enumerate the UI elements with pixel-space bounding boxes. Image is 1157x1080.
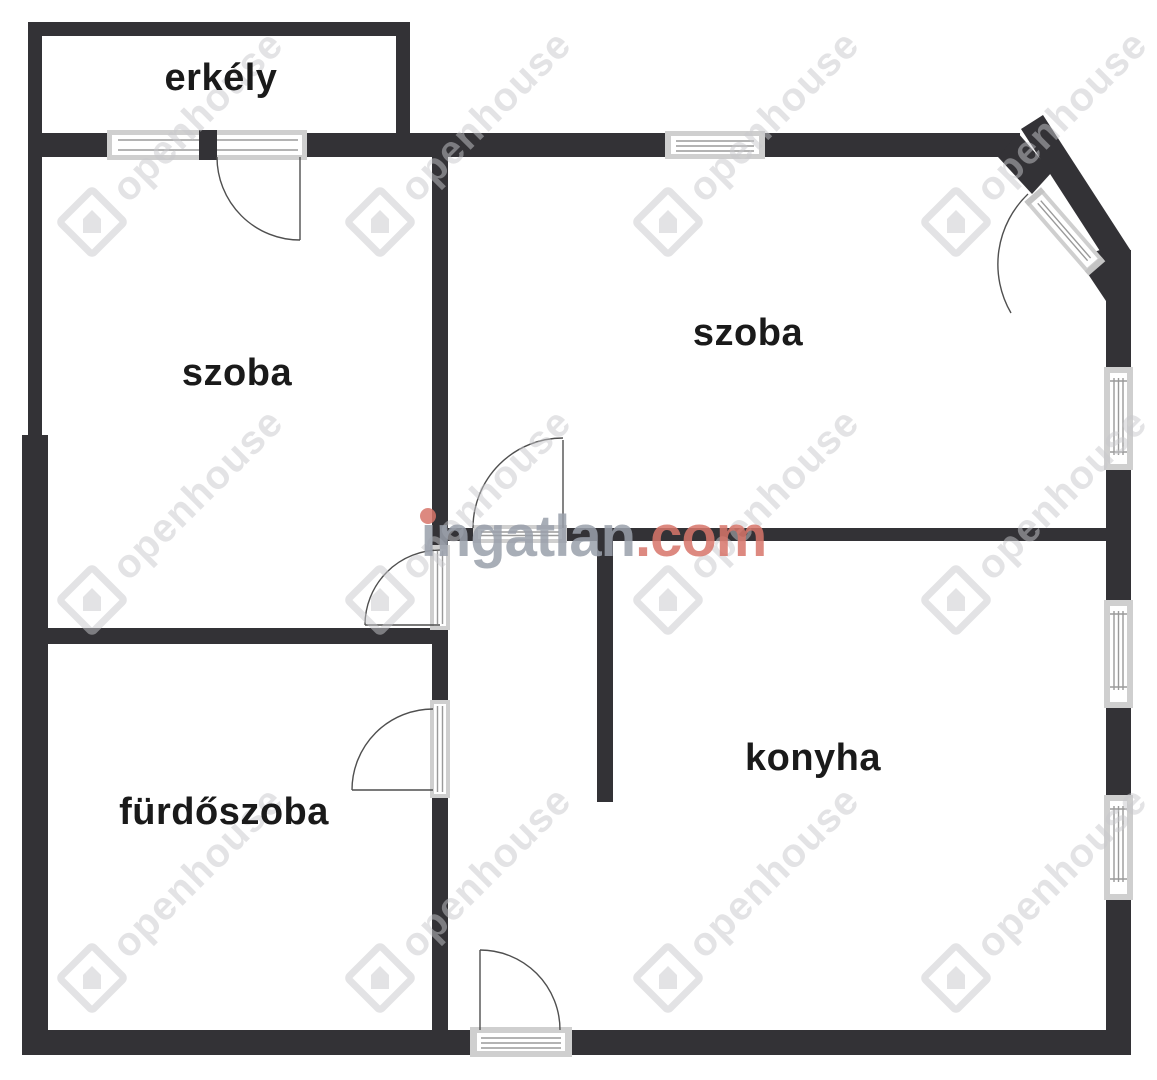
wall (572, 1030, 1131, 1055)
room-label-szoba-left: szoba (182, 352, 293, 394)
brand-i-dot (420, 508, 436, 524)
window (1104, 600, 1133, 708)
door-frame (430, 700, 450, 798)
wall (432, 157, 448, 545)
wall (396, 22, 410, 135)
room-label-szoba-right: szoba (693, 312, 804, 354)
room-label-konyha: konyha (745, 737, 881, 779)
wall (1106, 250, 1131, 367)
wall (765, 133, 1020, 157)
room-label-furdoszoba: fürdőszoba (119, 791, 329, 833)
wall (432, 630, 448, 700)
room-label-erkely: erkély (165, 57, 278, 99)
wall (22, 1030, 470, 1055)
door-frame (470, 1027, 572, 1057)
floor-plan-svg: openhouse (0, 0, 1157, 1080)
wall (28, 22, 42, 135)
brand-watermark-name: ingatlan (421, 504, 635, 569)
wall (1106, 470, 1131, 600)
wall (22, 435, 48, 1055)
wall (597, 540, 613, 802)
wall (28, 133, 42, 440)
brand-watermark-tld: .com (635, 504, 766, 569)
floor-plan-page: openhouse (0, 0, 1157, 1080)
wall (28, 22, 410, 36)
brand-watermark: ingatlan .com (420, 504, 766, 569)
